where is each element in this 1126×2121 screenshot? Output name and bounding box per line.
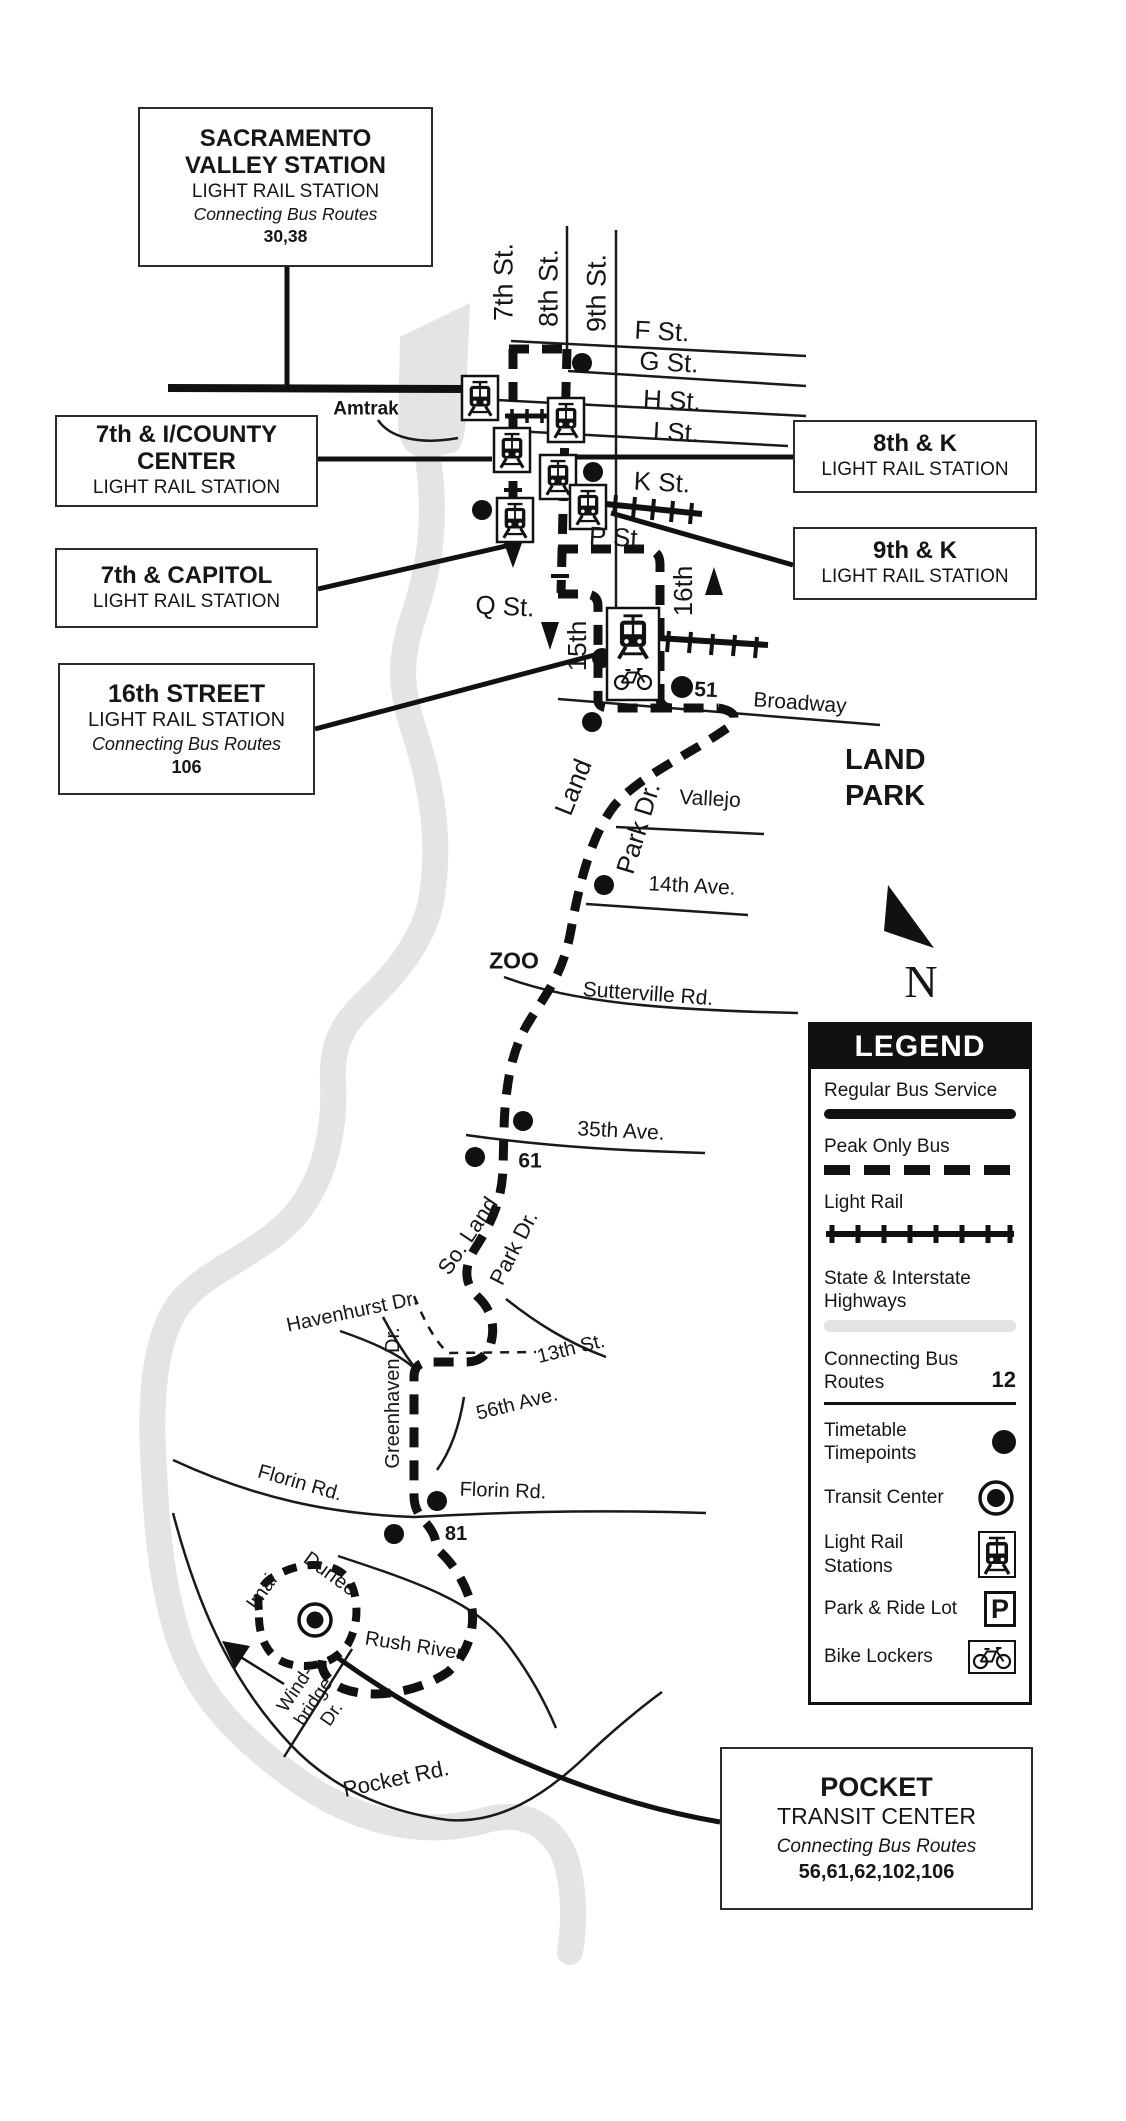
legend-timepoints-label: Timetable Timepoints bbox=[824, 1419, 916, 1465]
box-routes: 30,38 bbox=[264, 226, 308, 248]
legend-connecting-routes-value: 12 bbox=[992, 1367, 1016, 1394]
box-subtitle: LIGHT RAIL STATION bbox=[93, 476, 280, 500]
legend-light-rail-label: Light Rail bbox=[824, 1191, 1016, 1214]
transit-route-map: 7th St. 8th St. 9th St. F St. G St. H St… bbox=[0, 0, 1126, 2121]
timepoint-dot-icon bbox=[992, 1430, 1016, 1454]
highway-line-sample bbox=[824, 1320, 1016, 1332]
street-label-florin-rd-east: Florin Rd. bbox=[459, 1479, 546, 1502]
box-connecting-label: Connecting Bus Routes bbox=[194, 203, 378, 226]
legend-highways-label-line1: State & Interstate bbox=[824, 1267, 1016, 1290]
street-label-14th-ave: 14th Ave. bbox=[648, 873, 736, 899]
legend-regular-bus-label: Regular Bus Service bbox=[824, 1079, 1016, 1102]
callout-16th-street: 16th STREET LIGHT RAIL STATION Connectin… bbox=[58, 663, 315, 795]
box-title: 9th & K bbox=[873, 538, 957, 565]
connecting-label-line2: Routes bbox=[824, 1371, 958, 1394]
compass-north-label: N bbox=[904, 959, 937, 1005]
box-routes: 106 bbox=[171, 756, 201, 779]
callout-9th-k: 9th & K LIGHT RAIL STATION bbox=[793, 527, 1037, 600]
light-rail-station-icon bbox=[978, 1531, 1016, 1578]
station-icon bbox=[548, 398, 584, 442]
box-connecting-label: Connecting Bus Routes bbox=[777, 1835, 977, 1860]
legend-bike-lockers-label: Bike Lockers bbox=[824, 1645, 933, 1668]
legend-title: LEGEND bbox=[811, 1025, 1029, 1069]
box-subtitle: LIGHT RAIL STATION bbox=[93, 590, 280, 614]
land-park-line2: PARK bbox=[845, 778, 926, 814]
land-park-line1: LAND bbox=[845, 742, 926, 778]
station-icon bbox=[494, 428, 530, 472]
legend-transit-center-label: Transit Center bbox=[824, 1486, 944, 1509]
street-label-g-st: G St. bbox=[639, 347, 700, 376]
box-title: CENTER bbox=[137, 449, 236, 476]
box-subtitle: LIGHT RAIL STATION bbox=[821, 565, 1008, 589]
regular-bus-line-sample bbox=[824, 1109, 1016, 1119]
light-rail-line-sample bbox=[824, 1222, 1016, 1251]
street-label-vallejo: Vallejo bbox=[679, 787, 741, 811]
stations-label-line2: Stations bbox=[824, 1555, 903, 1578]
callout-7th-i-county-center: 7th & I/COUNTY CENTER LIGHT RAIL STATION bbox=[55, 415, 318, 507]
box-title: 7th & I/COUNTY bbox=[96, 422, 277, 449]
legend-park-ride-label: Park & Ride Lot bbox=[824, 1597, 957, 1620]
box-title: POCKET bbox=[820, 1772, 933, 1802]
street-label-15th: 15th bbox=[564, 621, 590, 672]
legend-peak-bus-label: Peak Only Bus bbox=[824, 1135, 1016, 1158]
transit-center-icon bbox=[976, 1478, 1016, 1518]
street-label-8th-st: 8th St. bbox=[536, 249, 563, 327]
box-subtitle: TRANSIT CENTER bbox=[777, 1802, 976, 1831]
station-icon-16th-with-bike-lockers bbox=[607, 608, 659, 700]
box-title: 16th STREET bbox=[108, 680, 265, 708]
place-label-land-park: LAND PARK bbox=[845, 742, 926, 815]
regular-bus-line bbox=[168, 388, 464, 389]
north-arrow-icon bbox=[884, 885, 934, 948]
street-label-h-st: H St. bbox=[642, 386, 701, 415]
legend: LEGEND Regular Bus Service Peak Only Bus… bbox=[808, 1022, 1032, 1705]
legend-stations-label: Light Rail Stations bbox=[824, 1531, 903, 1577]
callout-7th-capitol: 7th & CAPITOL LIGHT RAIL STATION bbox=[55, 548, 318, 628]
street-label-f-st: F St. bbox=[634, 317, 690, 346]
street-label-q-st: Q St. bbox=[475, 591, 536, 620]
place-label-zoo: ZOO bbox=[489, 950, 539, 973]
stations-label-line1: Light Rail bbox=[824, 1531, 903, 1554]
route-number-61: 61 bbox=[518, 1151, 541, 1172]
park-and-ride-icon: P bbox=[984, 1591, 1016, 1627]
timepoints-label-line2: Timepoints bbox=[824, 1442, 916, 1465]
route-number-81: 81 bbox=[445, 1524, 467, 1544]
box-routes: 56,61,62,102,106 bbox=[799, 1860, 955, 1885]
street-label-16th: 16th bbox=[670, 566, 696, 617]
place-label-amtrak: Amtrak bbox=[333, 400, 398, 419]
box-title: 7th & CAPITOL bbox=[101, 563, 273, 590]
peak-bus-line-sample bbox=[824, 1165, 1016, 1175]
route-number-51: 51 bbox=[694, 679, 718, 701]
transit-center-icon bbox=[299, 1604, 331, 1636]
box-subtitle: LIGHT RAIL STATION bbox=[192, 180, 379, 204]
callout-sacramento-valley-station: SACRAMENTO VALLEY STATION LIGHT RAIL STA… bbox=[138, 107, 433, 267]
legend-connecting-routes-label: Connecting Bus Routes bbox=[824, 1348, 958, 1394]
bike-lockers-icon bbox=[968, 1640, 1016, 1674]
callout-8th-k: 8th & K LIGHT RAIL STATION bbox=[793, 420, 1037, 493]
street-label-p-st: P St. bbox=[588, 523, 645, 552]
legend-highways-label-line2: Highways bbox=[824, 1290, 1016, 1313]
street-label-greenhaven-dr: Greenhaven Dr. bbox=[383, 1327, 403, 1468]
connecting-label-line1: Connecting Bus bbox=[824, 1348, 958, 1371]
box-title: VALLEY STATION bbox=[185, 153, 386, 180]
street-label-35th-ave: 35th Ave. bbox=[577, 1118, 665, 1144]
station-icon bbox=[462, 376, 498, 420]
callout-pocket-transit-center: POCKET TRANSIT CENTER Connecting Bus Rou… bbox=[720, 1747, 1033, 1910]
street-label-k-st: K St. bbox=[633, 468, 691, 497]
street-label-9th-st: 9th St. bbox=[584, 254, 611, 332]
street-label-7th-st: 7th St. bbox=[491, 243, 518, 321]
box-title: 8th & K bbox=[873, 431, 957, 458]
box-subtitle: LIGHT RAIL STATION bbox=[88, 708, 285, 733]
street-label-i-st: I St. bbox=[652, 418, 700, 446]
box-title: SACRAMENTO bbox=[200, 126, 372, 153]
timepoints-label-line1: Timetable bbox=[824, 1419, 916, 1442]
legend-divider bbox=[824, 1402, 1016, 1405]
box-subtitle: LIGHT RAIL STATION bbox=[821, 458, 1008, 482]
box-connecting-label: Connecting Bus Routes bbox=[92, 733, 281, 756]
station-icon bbox=[497, 498, 533, 542]
